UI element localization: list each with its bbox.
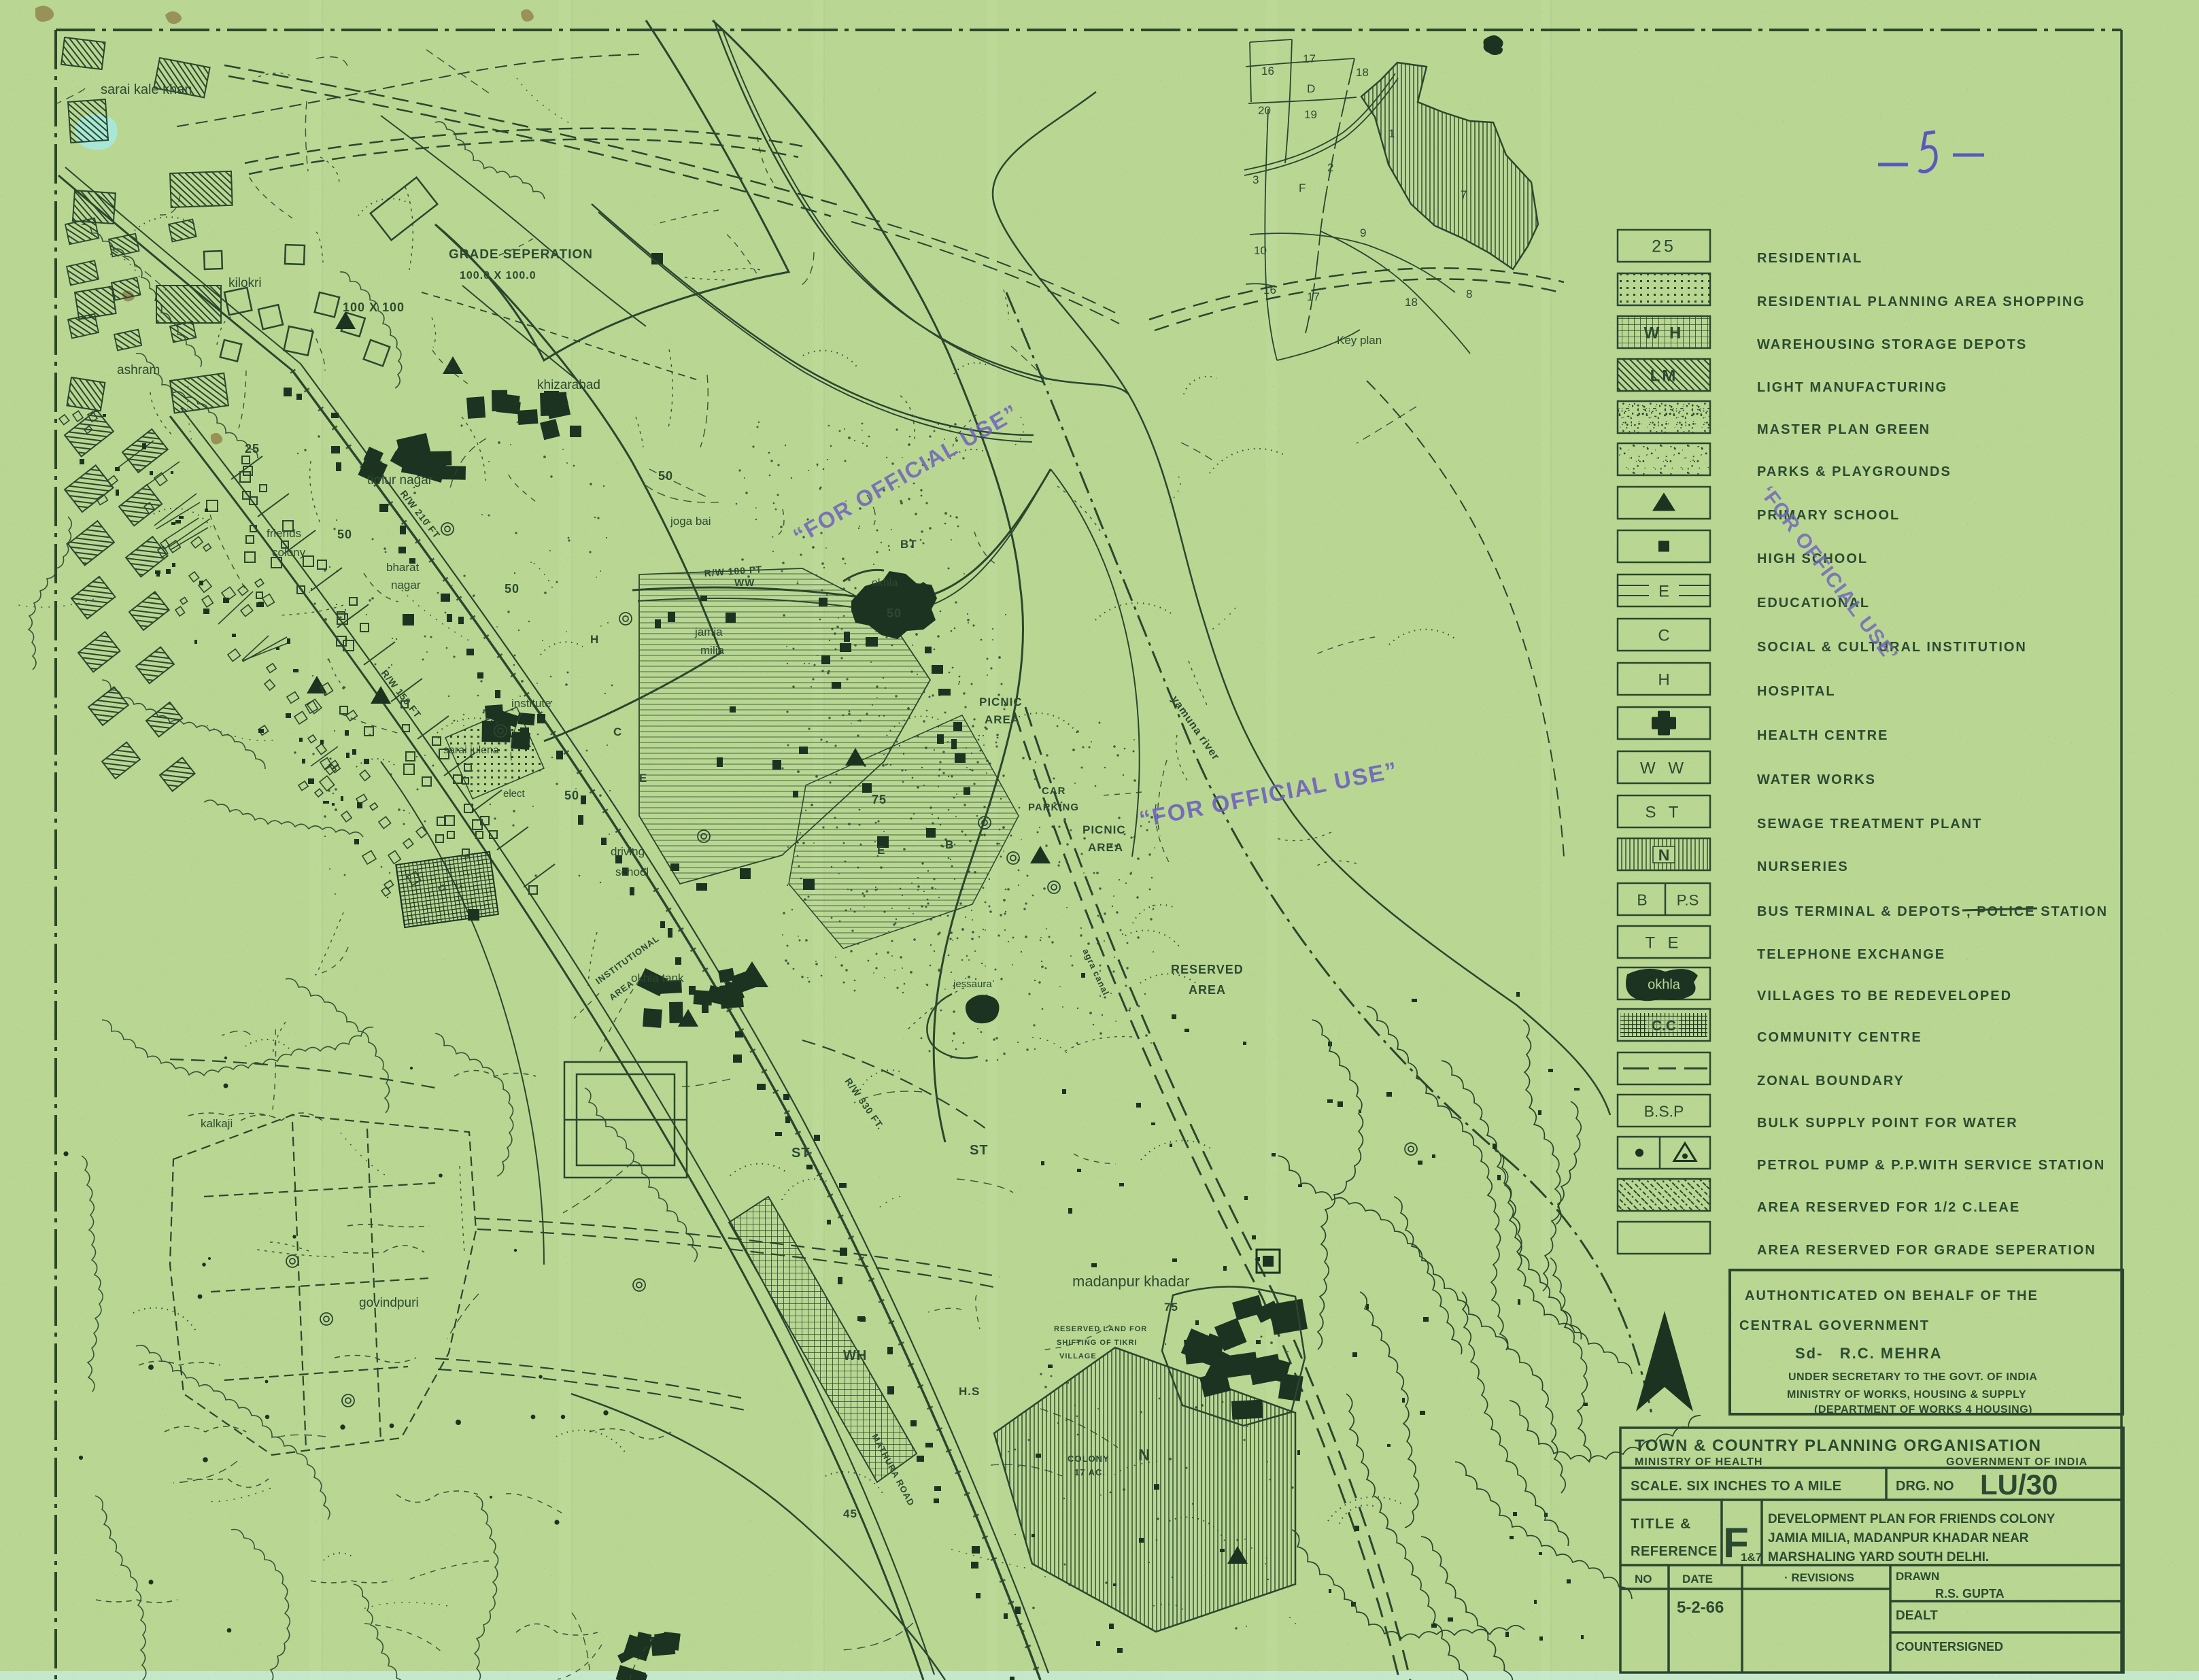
svg-text:D: D (1307, 82, 1315, 95)
svg-text:COUNTERSIGNED: COUNTERSIGNED (1896, 1640, 2003, 1653)
svg-text:school: school (615, 865, 649, 878)
svg-text:UNDER SECRETARY TO THE GOVT. O: UNDER SECRETARY TO THE GOVT. OF INDIA (1788, 1371, 2037, 1383)
svg-text:JAMIA MILIA, MADANPUR KHADAR N: JAMIA MILIA, MADANPUR KHADAR NEAR (1768, 1531, 2029, 1545)
svg-text:P.S: P.S (1677, 892, 1699, 909)
svg-text:DRAWN: DRAWN (1896, 1570, 1939, 1583)
svg-text:MARSHALING YARD SOUTH DELHI.: MARSHALING YARD SOUTH DELHI. (1768, 1550, 1989, 1564)
svg-text:18: 18 (1356, 66, 1369, 79)
svg-text:NURSERIES: NURSERIES (1757, 859, 1849, 874)
svg-text:Sd- R.C. MEHRA: Sd- R.C. MEHRA (1795, 1345, 1943, 1362)
svg-text:PETROL PUMP & P.P.WITH SERVICE: PETROL PUMP & P.P.WITH SERVICE STATION (1757, 1158, 2105, 1173)
svg-text:50: 50 (658, 469, 673, 483)
svg-text:AREA: AREA (985, 713, 1020, 726)
svg-text:T E: T E (1646, 934, 1683, 953)
svg-text:jamia: jamia (694, 625, 723, 638)
svg-text:AUTHONTICATED ON BEHALF OF THE: AUTHONTICATED ON BEHALF OF THE (1745, 1288, 2039, 1303)
svg-text:100 X 100: 100 X 100 (343, 301, 405, 314)
svg-text:N: N (1658, 846, 1670, 864)
svg-text:S T: S T (1646, 804, 1683, 822)
svg-text:B: B (945, 838, 954, 851)
svg-text:CENTRAL GOVERNMENT: CENTRAL GOVERNMENT (1739, 1318, 1930, 1333)
svg-text:100.0 X 100.0: 100.0 X 100.0 (460, 270, 536, 281)
svg-text:kalkaji: kalkaji (201, 1117, 233, 1130)
svg-text:SHIFTING OF TIKRI: SHIFTING OF TIKRI (1057, 1339, 1137, 1347)
svg-text:PICNIC: PICNIC (979, 696, 1023, 708)
svg-text:DEALT: DEALT (1896, 1609, 1938, 1623)
svg-text:PICNIC: PICNIC (1083, 823, 1126, 836)
svg-text:driving: driving (611, 845, 645, 858)
svg-text:okhla: okhla (1648, 978, 1681, 993)
svg-text:AREA RESERVED FOR 1/2 C.LEAE: AREA RESERVED FOR 1/2 C.LEAE (1757, 1200, 2020, 1215)
svg-text:RESIDENTIAL PLANNING AREA SHOP: RESIDENTIAL PLANNING AREA SHOPPING (1757, 294, 2085, 309)
svg-text:MINISTRY OF HEALTH: MINISTRY OF HEALTH (1635, 1456, 1762, 1468)
svg-text:WATER WORKS: WATER WORKS (1757, 772, 1876, 787)
svg-text:okhla tank: okhla tank (631, 972, 684, 984)
svg-text:govindpuri: govindpuri (359, 1296, 419, 1310)
svg-text:DATE: DATE (1682, 1573, 1713, 1585)
svg-text:45: 45 (843, 1507, 857, 1520)
svg-text:VILLAGE: VILLAGE (1059, 1352, 1097, 1360)
svg-text:AREA: AREA (1088, 841, 1123, 854)
svg-text:B: B (1637, 891, 1647, 909)
svg-text:HOSPITAL: HOSPITAL (1757, 684, 1836, 699)
svg-text:MINISTRY OF WORKS, HOUSING & S: MINISTRY OF WORKS, HOUSING & SUPPLY (1787, 1389, 2026, 1401)
svg-text:RESERVED: RESERVED (1171, 963, 1244, 976)
svg-text:W H: W H (1644, 324, 1684, 343)
svg-text:3: 3 (1252, 173, 1259, 186)
svg-text:timur nagar: timur nagar (367, 473, 433, 487)
svg-text:khizarabad: khizarabad (537, 378, 600, 392)
svg-text:BUS TERMINAL & DEPOTS , POLICE: BUS TERMINAL & DEPOTS , POLICE STATION (1757, 904, 2108, 919)
svg-text:milia: milia (700, 644, 724, 657)
svg-text:NO: NO (1635, 1573, 1652, 1585)
svg-text:2: 2 (1327, 161, 1333, 174)
svg-text:TELEPHONE EXCHANGE: TELEPHONE EXCHANGE (1757, 947, 1945, 962)
svg-text:bharat: bharat (386, 561, 419, 574)
svg-text:okhla: okhla (872, 577, 898, 589)
svg-text:AREA RESERVED FOR GRADE SEPERA: AREA RESERVED FOR GRADE SEPERATION (1757, 1243, 2096, 1258)
svg-text:9: 9 (1360, 226, 1366, 239)
svg-text:C.C: C.C (1652, 1018, 1676, 1034)
svg-text:PARKING: PARKING (1028, 802, 1079, 813)
svg-text:RESIDENTIAL: RESIDENTIAL (1757, 251, 1862, 266)
svg-text:· REVISIONS: · REVISIONS (1784, 1571, 1854, 1584)
svg-text:18: 18 (1405, 296, 1418, 309)
svg-text:50: 50 (887, 606, 902, 620)
svg-text:1: 1 (1388, 127, 1395, 140)
svg-text:5-2-66: 5-2-66 (1677, 1598, 1724, 1617)
svg-text:N: N (1138, 1446, 1150, 1464)
svg-text:RESERVED LAND FOR: RESERVED LAND FOR (1054, 1325, 1147, 1333)
svg-text:LIGHT MANUFACTURING: LIGHT MANUFACTURING (1757, 380, 1947, 395)
svg-text:17: 17 (1307, 290, 1320, 303)
svg-text:R.S. GUPTA: R.S. GUPTA (1935, 1587, 2005, 1600)
svg-text:colony: colony (272, 546, 306, 559)
svg-text:WH: WH (843, 1348, 867, 1363)
svg-text:1&7: 1&7 (1741, 1551, 1762, 1564)
svg-text:Key plan: Key plan (1337, 334, 1382, 347)
svg-text:COMMUNITY CENTRE: COMMUNITY CENTRE (1757, 1030, 1922, 1045)
svg-text:19: 19 (1304, 108, 1317, 121)
svg-text:20: 20 (1258, 104, 1271, 117)
svg-text:VILLAGES TO BE REDEVELOPED: VILLAGES TO BE REDEVELOPED (1757, 989, 2012, 1004)
svg-text:H.S: H.S (959, 1385, 980, 1398)
svg-text:GOVERNMENT OF INDIA: GOVERNMENT OF INDIA (1946, 1456, 2087, 1468)
svg-text:DEVELOPMENT PLAN FOR FRIENDS C: DEVELOPMENT PLAN FOR FRIENDS COLONY (1768, 1512, 2056, 1526)
svg-text:ashram: ashram (117, 363, 160, 377)
svg-text:ST: ST (970, 1143, 989, 1158)
svg-text:75: 75 (872, 793, 887, 806)
svg-text:16: 16 (1261, 65, 1274, 78)
svg-text:17: 17 (1303, 52, 1316, 65)
svg-text:16: 16 (1263, 284, 1276, 296)
svg-text:WAREHOUSING STORAGE DEPOTS: WAREHOUSING STORAGE DEPOTS (1757, 337, 2027, 352)
svg-text:BT: BT (900, 538, 917, 551)
svg-text:HEALTH CENTRE: HEALTH CENTRE (1757, 728, 1888, 743)
svg-text:H: H (1658, 671, 1669, 689)
svg-text:17 AC.: 17 AC. (1074, 1467, 1106, 1477)
svg-text:50: 50 (337, 528, 352, 541)
svg-text:PARKS & PLAYGROUNDS: PARKS & PLAYGROUNDS (1757, 464, 1951, 479)
svg-text:8: 8 (1466, 288, 1472, 301)
svg-text:nagar: nagar (391, 579, 421, 592)
svg-text:CAR: CAR (1042, 785, 1066, 797)
svg-text:MASTER PLAN GREEN: MASTER PLAN GREEN (1757, 422, 1930, 437)
svg-text:C: C (613, 725, 622, 738)
svg-text:10: 10 (1254, 244, 1267, 257)
svg-text:7: 7 (1461, 188, 1467, 201)
svg-text:50: 50 (505, 582, 519, 596)
svg-text:50: 50 (564, 789, 579, 802)
svg-text:LU/30: LU/30 (1980, 1469, 2058, 1501)
svg-text:WW: WW (734, 577, 755, 589)
svg-text:E: E (639, 772, 647, 785)
svg-text:E: E (877, 844, 885, 857)
svg-text:BULK SUPPLY POINT FOR WATER: BULK SUPPLY POINT FOR WATER (1757, 1116, 2018, 1131)
svg-text:institute: institute (511, 697, 551, 710)
svg-text:25: 25 (1652, 237, 1676, 256)
svg-text:COLONY: COLONY (1068, 1454, 1110, 1464)
svg-text:(DEPARTMENT OF WORKS 4 HOUSING: (DEPARTMENT OF WORKS 4 HOUSING) (1814, 1404, 2032, 1416)
svg-text:kilokri: kilokri (228, 276, 262, 290)
svg-text:friends: friends (267, 527, 301, 540)
svg-text:TOWN & COUNTRY PLANNING ORGANI: TOWN & COUNTRY PLANNING ORGANISATION (1635, 1437, 2041, 1455)
svg-text:GRADE SEPERATION: GRADE SEPERATION (449, 247, 593, 262)
svg-text:SEWAGE TREATMENT PLANT: SEWAGE TREATMENT PLANT (1757, 817, 1982, 832)
svg-text:ST: ST (791, 1146, 811, 1161)
svg-text:E: E (1658, 583, 1669, 601)
svg-text:REFERENCE: REFERENCE (1631, 1544, 1718, 1559)
svg-text:B.S.P: B.S.P (1644, 1103, 1684, 1120)
svg-text:DRG. NO: DRG. NO (1896, 1479, 1954, 1494)
svg-text:sarai kale khan: sarai kale khan (101, 82, 192, 97)
svg-text:C: C (1658, 627, 1669, 645)
svg-text:madanpur khadar: madanpur khadar (1072, 1273, 1189, 1290)
svg-text:SCALE. SIX INCHES TO A MILE: SCALE. SIX INCHES TO A MILE (1631, 1479, 1842, 1494)
svg-text:ZONAL BOUNDARY: ZONAL BOUNDARY (1757, 1074, 1905, 1088)
svg-text:sarai julena: sarai julena (443, 744, 499, 756)
svg-text:75: 75 (1164, 1301, 1178, 1314)
svg-text:F: F (1299, 182, 1306, 194)
svg-text:AREA: AREA (1189, 983, 1226, 997)
svg-text:H: H (590, 633, 599, 646)
svg-text:25: 25 (245, 442, 260, 456)
svg-text:LM: LM (1650, 367, 1678, 385)
svg-text:jessaura: jessaura (953, 978, 992, 990)
svg-text:joga bai: joga bai (670, 515, 711, 528)
svg-text:TITLE &: TITLE & (1631, 1516, 1692, 1532)
svg-text:W W: W W (1640, 759, 1688, 778)
svg-text:elect: elect (503, 788, 526, 800)
